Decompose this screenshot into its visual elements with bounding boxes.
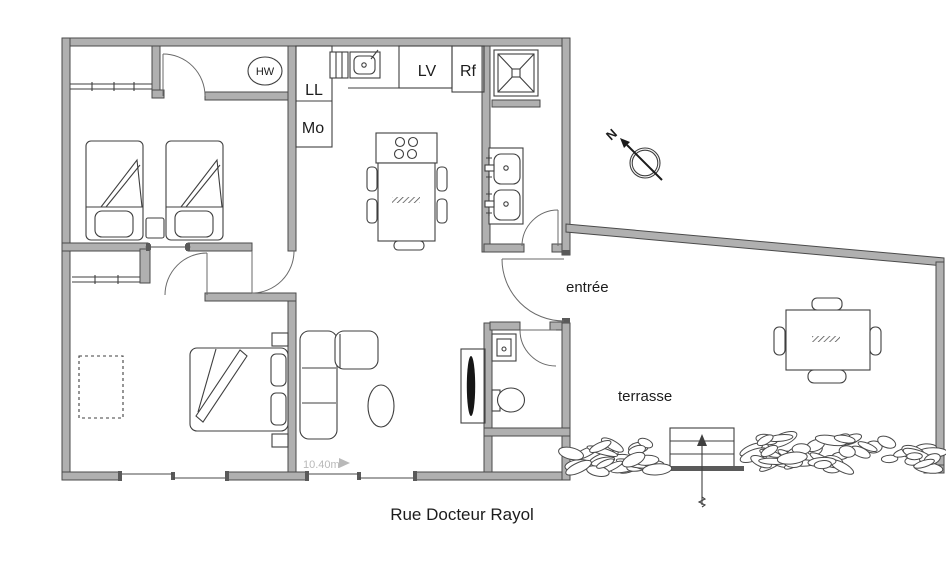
- single-bed-1-icon: [86, 141, 143, 240]
- chair: [808, 370, 846, 383]
- kitchen-furniture: [296, 46, 484, 250]
- refrigerator-label: Rf: [460, 63, 477, 80]
- terrace-label: terrasse: [618, 388, 672, 405]
- table-hatch-mark: [392, 197, 420, 203]
- wardrobe-dashed-icon: [79, 356, 123, 418]
- terrace-wall-east: [936, 262, 944, 467]
- door-hw-room: [163, 54, 205, 96]
- door-wc: [520, 330, 556, 366]
- wall-shower-lip: [492, 100, 540, 107]
- wall-wc-north: [490, 322, 520, 330]
- master-bedroom-furniture: [79, 333, 288, 447]
- wall-hall-closet: [140, 249, 150, 283]
- wall-bedroom1-south-b: [188, 243, 252, 251]
- rock-icon: [557, 445, 584, 462]
- entrance-label: entrée: [566, 279, 609, 296]
- chair: [870, 327, 881, 355]
- wall-center-upper: [288, 46, 296, 251]
- pillow: [271, 393, 286, 425]
- wall-closet1-stub: [152, 90, 164, 98]
- double-bed-icon: [190, 348, 288, 431]
- sliding-window-living: [305, 471, 417, 481]
- single-bed-2-icon: [166, 141, 223, 240]
- table-hatch-mark: [812, 336, 840, 342]
- wall-south-pier-2: [227, 472, 307, 480]
- living-room-furniture: [300, 331, 485, 439]
- wall-bedroom1-south-a: [62, 243, 148, 251]
- dimension-arrow-icon: [339, 458, 350, 468]
- wall-wc-north-post: [550, 322, 562, 330]
- wall-west: [62, 38, 70, 480]
- wall-center-lower: [288, 293, 296, 472]
- door-sliding-bedroom1: [145, 243, 191, 251]
- floor-plan-page: N HW LL Mo LV Rf entrée terrasse Rue Doc…: [0, 0, 946, 568]
- kitchen-sink-icon: [350, 50, 380, 78]
- pillow: [95, 211, 133, 237]
- chair: [367, 167, 377, 191]
- wc-basin-icon: [492, 334, 516, 361]
- wall-north: [62, 38, 570, 46]
- chair: [394, 241, 424, 250]
- wall-east-upper: [562, 38, 570, 255]
- bedside-table-icon: [272, 333, 288, 346]
- toilet-icon: [492, 388, 525, 412]
- dimension-label: 10.40m: [303, 459, 340, 471]
- door-bathroom: [522, 210, 558, 246]
- wall-south-pier-3: [415, 472, 570, 480]
- wall-bath-south: [484, 244, 524, 252]
- closet-top: [70, 82, 152, 91]
- wall-hw-room-south: [205, 92, 288, 100]
- door-hall-corner: [252, 251, 294, 293]
- wall-south-pier-1: [62, 472, 120, 480]
- kitchen-island: [367, 133, 447, 250]
- bedside-table-icon: [272, 434, 288, 447]
- rock-landscaping-left: [557, 435, 672, 478]
- double-basin-icon: [485, 148, 523, 224]
- wc-furniture: [492, 334, 525, 412]
- chair: [437, 199, 447, 223]
- wall-wc-south: [484, 428, 570, 436]
- pillow: [271, 354, 286, 386]
- rock-landscaping-right: [738, 428, 946, 477]
- wall-bath-south-post: [552, 244, 562, 252]
- oven-label: Mo: [302, 120, 324, 137]
- nightstand-icon: [146, 218, 164, 238]
- hall-closet: [72, 275, 140, 284]
- water-heater-label: HW: [256, 66, 275, 78]
- compass-north-icon: N: [603, 126, 662, 180]
- stairs-icon: [660, 428, 744, 507]
- coffee-table-icon: [368, 385, 394, 427]
- pillow: [175, 211, 213, 237]
- compass-north-label: N: [603, 126, 620, 143]
- terrace: [557, 298, 946, 507]
- chair: [774, 327, 785, 355]
- rock-icon: [907, 453, 923, 460]
- bathroom-furniture: [485, 50, 538, 224]
- street-label: Rue Docteur Rayol: [390, 505, 534, 524]
- tv-icon: [461, 349, 485, 423]
- sliding-window-bedroom: [118, 471, 229, 481]
- chair: [367, 199, 377, 223]
- kitchen-wall-cabinet: [330, 52, 348, 78]
- door-entrance: [502, 250, 570, 323]
- wall-closet1: [152, 46, 160, 96]
- floor-plan-drawing: N HW LL Mo LV Rf entrée terrasse Rue Doc…: [0, 0, 946, 568]
- twin-bedroom-furniture: [70, 57, 282, 240]
- door-master-bedroom: [165, 253, 207, 295]
- washing-machine-label: LL: [305, 82, 323, 99]
- corner-sofa-icon: [300, 331, 378, 439]
- wall-master-north: [205, 293, 296, 301]
- cooktop-icon: [376, 133, 437, 163]
- dimension-annotation: 10.40m: [303, 458, 350, 471]
- terrace-table-icon: [774, 298, 881, 383]
- terrace-wall-diagonal: [566, 224, 944, 266]
- dishwasher-label: LV: [418, 63, 437, 80]
- shower-icon: [494, 50, 538, 96]
- chair: [812, 298, 842, 310]
- chair: [437, 167, 447, 191]
